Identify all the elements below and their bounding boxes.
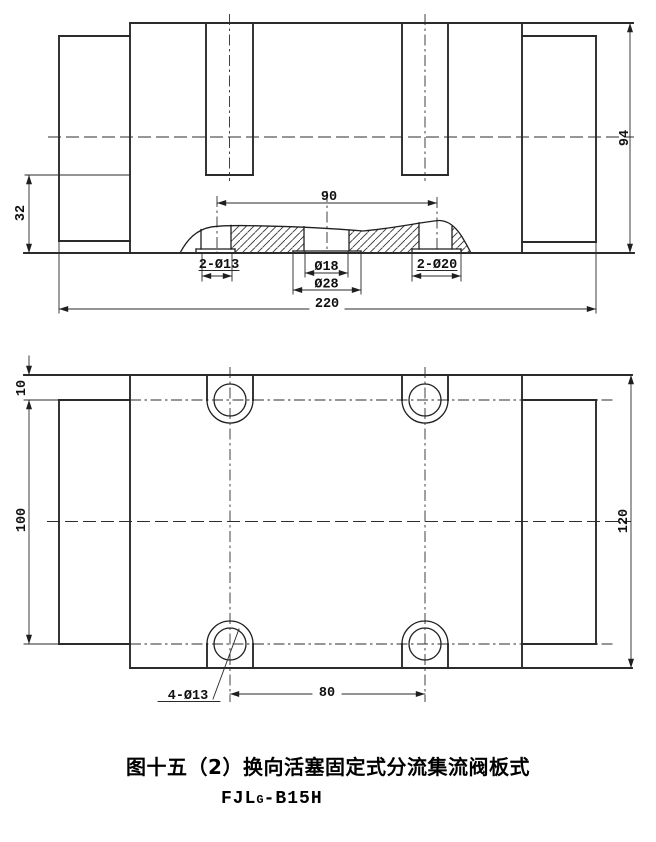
dim-hole-top-offset: 10 (15, 380, 30, 396)
section-dimensions: 90 32 94 2-Ø13 Ø18 Ø28 2-Ø20 (14, 23, 633, 313)
plan-dimensions: 10 100 120 80 4-Ø13 (15, 356, 632, 704)
dim-overall-height: 94 (618, 130, 633, 146)
section-outline (24, 23, 634, 253)
section-centerlines (48, 14, 634, 253)
dim-plan-overall-height: 120 (617, 509, 632, 533)
figure-caption: 图十五（2）换向活塞固定式分流集流阀板式 (0, 751, 656, 780)
dim-hole-row-spacing: 100 (15, 508, 30, 532)
model-prefix: FJL (221, 789, 256, 809)
section-boss-outline (180, 220, 471, 253)
plan-view: 10 100 120 80 4-Ø13 (15, 356, 632, 704)
model-suffix: -B15H (264, 789, 323, 809)
dim-port-spacing: 90 (321, 190, 337, 205)
drawing-sheet: 90 32 94 2-Ø13 Ø18 Ø28 2-Ø20 (0, 0, 656, 842)
model-subscript: G (256, 793, 263, 807)
section-view: 90 32 94 2-Ø13 Ø18 Ø28 2-Ø20 (14, 14, 634, 313)
technical-drawing: 90 32 94 2-Ø13 Ø18 Ø28 2-Ø20 (0, 0, 656, 842)
plan-centerlines (47, 367, 631, 702)
model-code: FJLG-B15H (221, 789, 323, 809)
dim-hole-col-spacing: 80 (319, 686, 335, 701)
dim-port-face-height: 32 (14, 205, 29, 221)
dim-overall-width: 220 (315, 297, 339, 312)
